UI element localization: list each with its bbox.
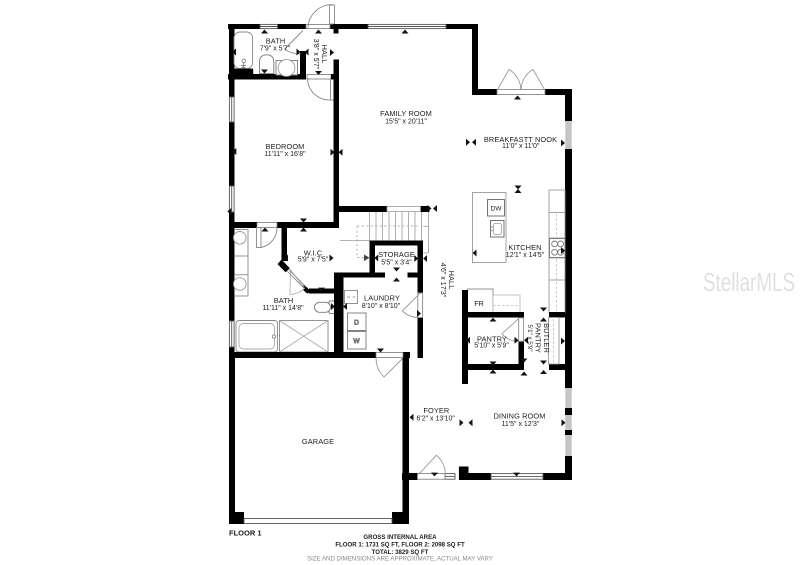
svg-text:FLOOR 1: FLOOR 1 — [229, 529, 262, 538]
svg-text:FLOOR 1: 1731 SQ FT, FLOOR 2:: FLOOR 1: 1731 SQ FT, FLOOR 2: 2098 SQ FT — [335, 542, 465, 549]
svg-text:D: D — [354, 320, 359, 327]
svg-text:15'5" x 20'11": 15'5" x 20'11" — [385, 119, 427, 126]
svg-text:6'2" x 13'10": 6'2" x 13'10" — [417, 415, 456, 422]
svg-text:BATH: BATH — [266, 37, 286, 46]
svg-text:PANTRY: PANTRY — [534, 323, 543, 353]
svg-text:5'10" x 5'9": 5'10" x 5'9" — [474, 343, 509, 350]
svg-text:BEDROOM: BEDROOM — [266, 142, 305, 151]
svg-text:11'5" x 12'3": 11'5" x 12'3" — [502, 421, 540, 428]
svg-text:GROSS INTERNAL AREA: GROSS INTERNAL AREA — [363, 534, 437, 541]
svg-text:HALL: HALL — [447, 271, 456, 290]
svg-text:3'8" x 5'7": 3'8" x 5'7" — [312, 39, 319, 70]
svg-text:12'1" x 14'5": 12'1" x 14'5" — [506, 252, 545, 259]
svg-text:DW: DW — [491, 206, 503, 213]
svg-text:FOYER: FOYER — [423, 406, 449, 415]
svg-text:SIZE AND DIMENSIONS ARE APPROX: SIZE AND DIMENSIONS ARE APPROXIMATE, ACT… — [307, 556, 493, 563]
svg-text:BATH: BATH — [274, 296, 294, 305]
svg-text:FR: FR — [474, 299, 484, 308]
svg-text:11'11" x 16'8": 11'11" x 16'8" — [264, 151, 306, 158]
svg-text:KITCHEN: KITCHEN — [508, 243, 541, 252]
svg-text:StellarMLS: StellarMLS — [703, 267, 795, 297]
svg-text:8'10" x 8'10": 8'10" x 8'10" — [362, 303, 401, 310]
svg-text:W: W — [353, 338, 360, 345]
svg-text:LAUNDRY: LAUNDRY — [364, 294, 400, 303]
svg-text:DINING ROOM: DINING ROOM — [493, 412, 545, 421]
svg-text:HALL: HALL — [320, 45, 329, 64]
svg-text:GARAGE: GARAGE — [302, 437, 334, 446]
svg-text:11'0" x 11'0": 11'0" x 11'0" — [502, 143, 540, 150]
svg-text:5'5" x 3'4": 5'5" x 3'4" — [381, 260, 412, 267]
svg-text:7'9" x 5'7": 7'9" x 5'7" — [260, 45, 291, 52]
svg-text:5'9" x 7'5": 5'9" x 7'5" — [298, 257, 329, 264]
svg-text:4'6" x 17'3": 4'6" x 17'3" — [439, 263, 446, 298]
svg-text:FAMILY ROOM: FAMILY ROOM — [380, 109, 432, 118]
svg-text:STORAGE: STORAGE — [378, 250, 415, 259]
svg-text:11'11" x 14'8": 11'11" x 14'8" — [262, 305, 304, 312]
